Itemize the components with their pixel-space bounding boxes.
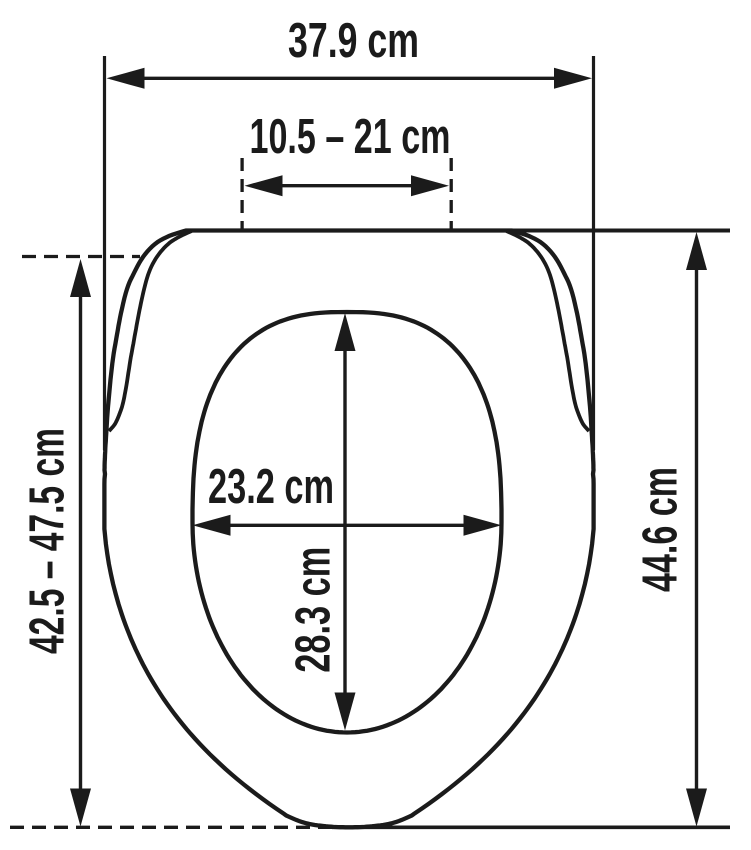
svg-text:10.5 – 21 cm: 10.5 – 21 cm: [250, 110, 451, 164]
svg-text:42.5 – 47.5 cm: 42.5 – 47.5 cm: [21, 428, 75, 654]
svg-text:28.3 cm: 28.3 cm: [287, 547, 341, 673]
svg-text:37.9 cm: 37.9 cm: [288, 14, 419, 68]
svg-text:23.2 cm: 23.2 cm: [208, 460, 334, 514]
svg-text:44.6 cm: 44.6 cm: [634, 467, 688, 592]
